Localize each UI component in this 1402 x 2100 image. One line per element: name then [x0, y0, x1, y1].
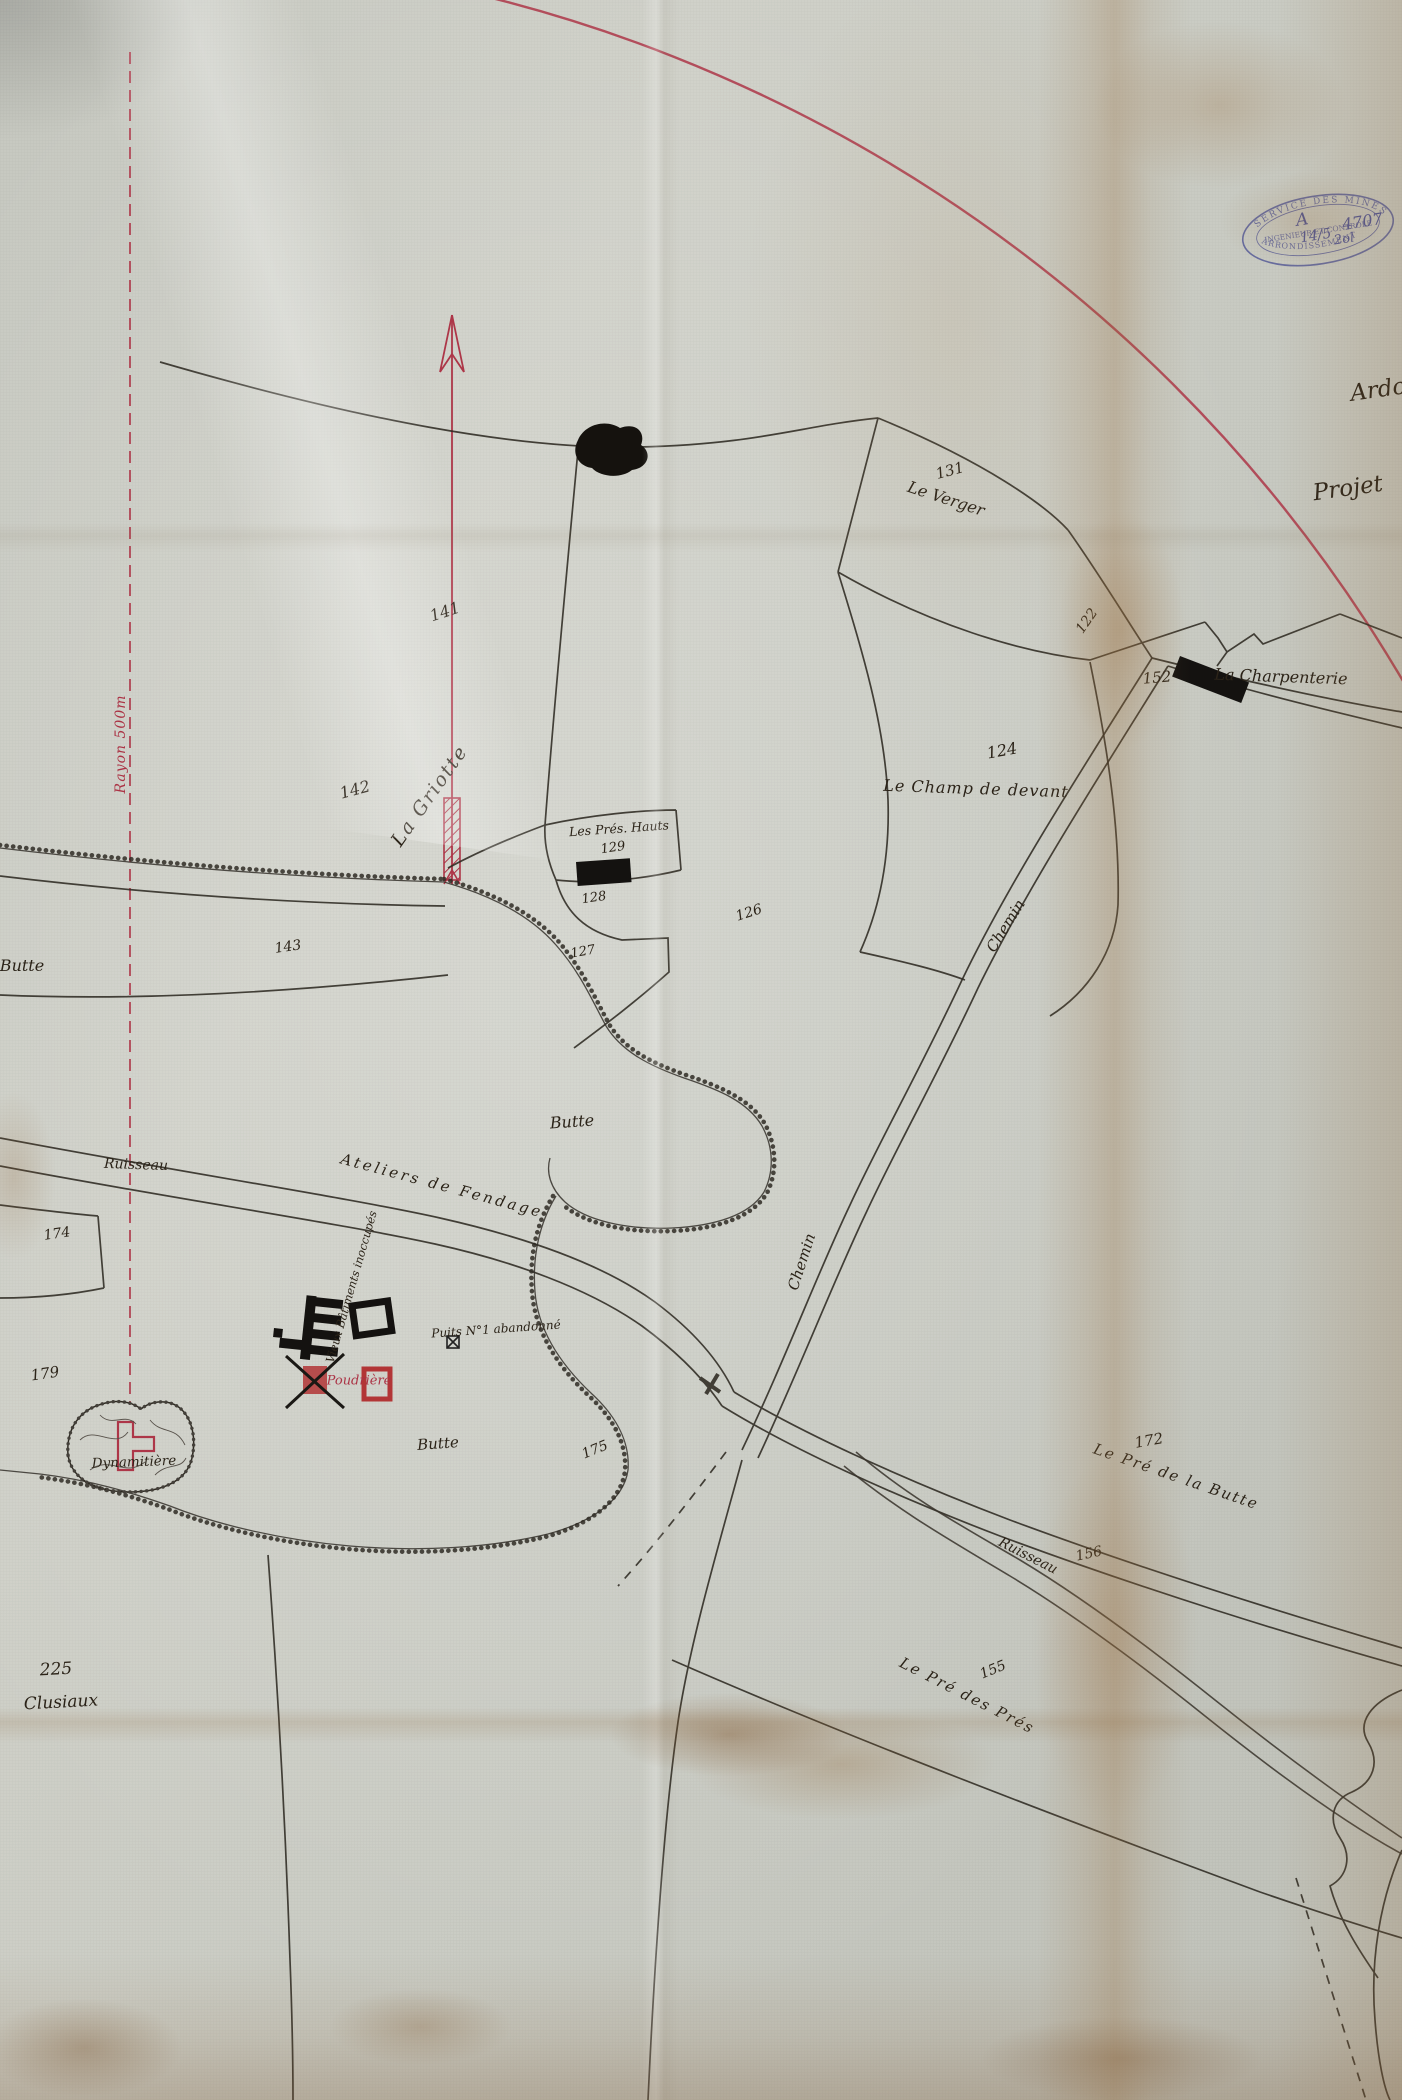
parcel-label-225: 225	[39, 1661, 72, 1680]
parcel-label-128: 128	[581, 890, 607, 906]
red-survey-marks	[0, 0, 1402, 2100]
map-drawing: SERVICE DES MINES ARRONDISSEMENT INGENIE…	[0, 0, 1402, 2100]
scanned-survey-map: SERVICE DES MINES ARRONDISSEMENT INGENIE…	[0, 0, 1402, 2100]
place-label-butte-lower: Butte	[417, 1435, 460, 1453]
place-label-butte-left: Butte	[0, 958, 44, 974]
stream-lines	[844, 1452, 1402, 1854]
rayon-500m-arc	[0, 0, 1402, 2100]
dynamitiere-mound	[68, 1402, 194, 1492]
pres-hauts-building	[576, 858, 632, 886]
place-label-butte-mid: Butte	[549, 1112, 594, 1131]
roads	[0, 658, 1402, 1666]
parcel-boundaries	[0, 362, 1402, 2100]
parcel-label-179: 179	[30, 1365, 60, 1384]
parcel-label-143: 143	[274, 938, 302, 956]
stream-label-ruisseau-left: Ruisseau	[104, 1157, 169, 1173]
place-label-clusiaux: Clusiaux	[23, 1693, 98, 1714]
ink-blot	[575, 424, 647, 476]
parcel-label-174: 174	[43, 1225, 71, 1243]
parcel-label-152: 152	[1142, 669, 1172, 686]
hedge-lines	[0, 845, 774, 1552]
parcel-label-129: 129	[600, 840, 626, 856]
place-label-la-charpenterie: La Charpenterie	[1214, 667, 1348, 688]
road-crossing-mark	[700, 1374, 720, 1394]
place-label-poudriere: Poudrière	[327, 1375, 392, 1388]
workshop-square-building	[352, 1301, 392, 1336]
buildings	[118, 656, 1249, 1470]
place-label-dynamitiere: Dynamitière	[92, 1455, 177, 1471]
rayon-500m-label: Rayon 500m	[114, 694, 128, 793]
